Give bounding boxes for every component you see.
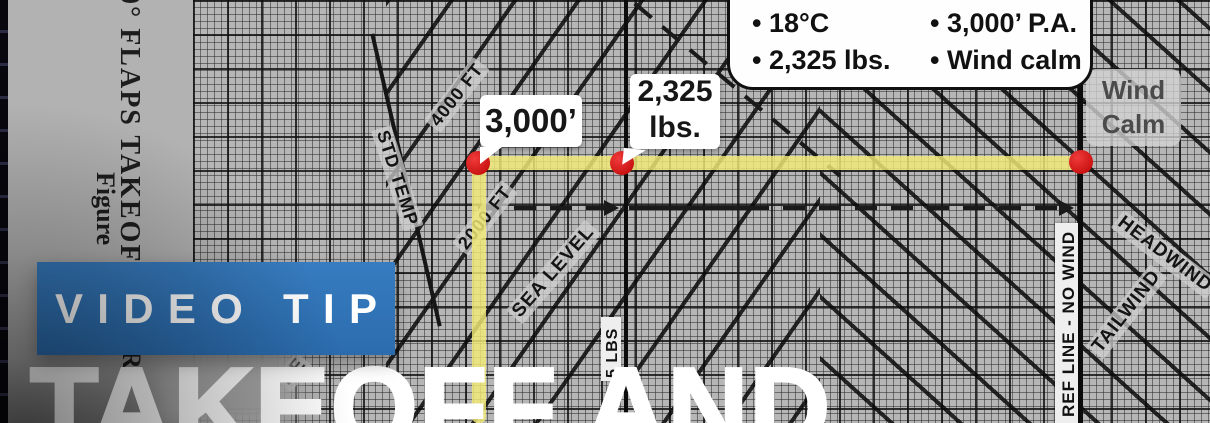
condition-weight: • 2,325 lbs. (752, 45, 930, 76)
weight-callout-line1: 2,325 (630, 74, 720, 110)
arrow-right-icon (604, 200, 619, 216)
video-tip-badge-label: VIDEO TIP (41, 285, 392, 333)
arrow-right-icon (1059, 200, 1074, 216)
yellow-horizontal-guide (478, 156, 1082, 170)
wind-calm-tag: Wind Calm (1086, 69, 1181, 146)
chart-figure-caption: Figure (90, 172, 120, 245)
conditions-box: • 18°C • 3,000’ P.A. • 2,325 lbs. • Wind… (727, 0, 1093, 90)
callout-tail (480, 147, 502, 164)
weight-callout: 2,325 lbs. (630, 74, 720, 149)
example-dashed-line (747, 206, 1059, 210)
video-tip-badge: VIDEO TIP (37, 262, 395, 355)
wind-tag-line1: Wind (1086, 73, 1181, 107)
altitude-callout-text: 3,000’ (485, 102, 577, 139)
callout-tail (622, 148, 646, 167)
video-thumbnail: 4000 FT STD TEMP 2000 FT SEA LEVEL RE HE… (0, 0, 1210, 423)
condition-wind: • Wind calm (930, 45, 1082, 76)
video-title: TAKEOFF AND (30, 352, 831, 423)
guide-dot-wind (1069, 150, 1093, 174)
wind-tag-line2: Calm (1086, 107, 1181, 141)
ref-line-label: REF LINE - NO WIND (1059, 231, 1079, 417)
weight-callout-line2: lbs. (630, 110, 720, 146)
film-strip-edge (0, 0, 8, 423)
example-guide-line (629, 206, 747, 210)
altitude-callout: 3,000’ (480, 95, 582, 147)
condition-temperature: • 18°C (752, 8, 930, 39)
condition-pressure-altitude: • 3,000’ P.A. (930, 8, 1082, 39)
